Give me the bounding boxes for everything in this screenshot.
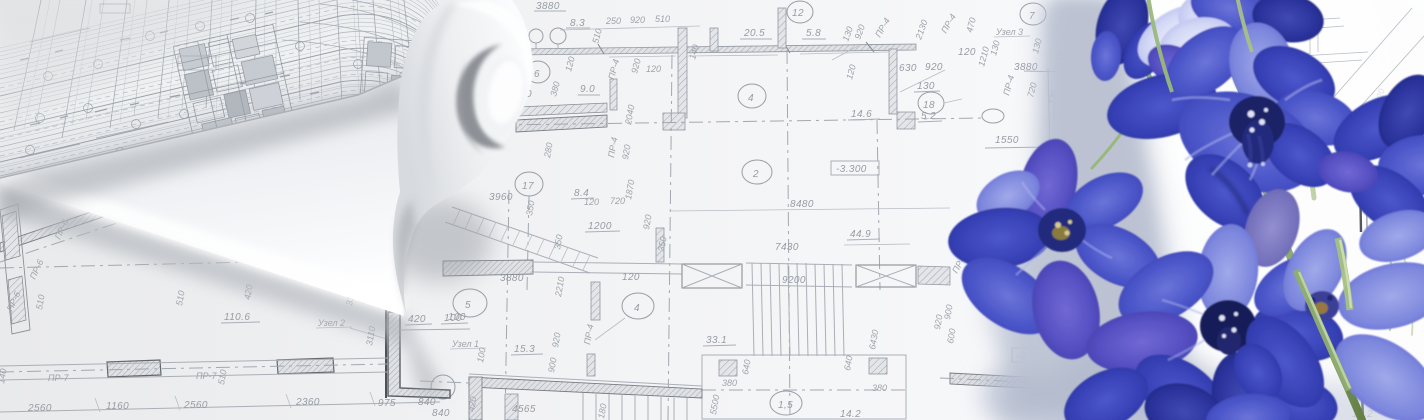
svg-text:8.3: 8.3 xyxy=(570,18,585,29)
svg-text:ПР-7: ПР-7 xyxy=(196,371,218,381)
svg-text:510: 510 xyxy=(655,14,670,24)
svg-text:110.6: 110.6 xyxy=(224,312,250,323)
svg-text:975: 975 xyxy=(378,398,396,409)
svg-text:8480: 8480 xyxy=(790,199,814,210)
svg-text:380: 380 xyxy=(872,383,887,393)
svg-text:5.8: 5.8 xyxy=(806,28,821,39)
svg-text:1550: 1550 xyxy=(995,135,1019,146)
svg-text:250: 250 xyxy=(605,16,621,26)
svg-text:630: 630 xyxy=(899,63,917,74)
svg-text:Узел 1: Узел 1 xyxy=(451,339,479,349)
svg-text:9200: 9200 xyxy=(782,275,806,286)
svg-text:Узел 3: Узел 3 xyxy=(995,27,1023,37)
svg-text:120: 120 xyxy=(958,47,976,58)
svg-text:2560: 2560 xyxy=(183,400,208,411)
svg-text:18: 18 xyxy=(923,100,935,111)
svg-text:14.6: 14.6 xyxy=(851,109,872,120)
svg-text:-3.300: -3.300 xyxy=(836,164,867,175)
svg-text:120: 120 xyxy=(622,272,640,283)
svg-text:3960: 3960 xyxy=(489,192,513,203)
svg-text:1200: 1200 xyxy=(588,221,612,232)
svg-text:6: 6 xyxy=(534,69,540,80)
svg-text:380: 380 xyxy=(722,378,737,388)
svg-text:1160: 1160 xyxy=(106,401,129,412)
svg-text:17: 17 xyxy=(522,181,534,192)
svg-text:840: 840 xyxy=(418,397,436,408)
svg-text:5.2: 5.2 xyxy=(921,111,936,122)
svg-text:920: 920 xyxy=(630,15,645,25)
svg-text:33.1: 33.1 xyxy=(706,335,727,346)
svg-text:120: 120 xyxy=(584,197,599,207)
svg-text:3880: 3880 xyxy=(500,273,524,284)
svg-text:4: 4 xyxy=(634,303,640,314)
svg-text:5: 5 xyxy=(465,300,471,311)
svg-text:100: 100 xyxy=(448,312,466,323)
svg-text:15.3: 15.3 xyxy=(514,344,535,355)
svg-text:720: 720 xyxy=(610,196,625,206)
svg-text:12: 12 xyxy=(792,8,804,19)
svg-text:7430: 7430 xyxy=(775,242,799,253)
svg-text:840: 840 xyxy=(432,408,450,419)
svg-text:2360: 2360 xyxy=(295,397,320,408)
svg-text:3880: 3880 xyxy=(536,1,560,12)
svg-text:ПР-7: ПР-7 xyxy=(48,373,70,383)
svg-text:14.2: 14.2 xyxy=(840,409,861,420)
svg-text:420: 420 xyxy=(408,314,426,325)
svg-text:2560: 2560 xyxy=(27,403,52,414)
svg-text:120: 120 xyxy=(646,64,661,74)
svg-text:1,5: 1,5 xyxy=(778,400,793,411)
svg-text:4: 4 xyxy=(748,93,754,104)
svg-text:920: 920 xyxy=(925,62,943,73)
svg-text:7: 7 xyxy=(1029,11,1035,22)
svg-text:44.9: 44.9 xyxy=(850,229,871,240)
svg-text:2: 2 xyxy=(752,169,759,180)
svg-text:4565: 4565 xyxy=(512,404,536,415)
svg-text:20.5: 20.5 xyxy=(743,28,765,39)
svg-text:9.0: 9.0 xyxy=(580,84,595,95)
